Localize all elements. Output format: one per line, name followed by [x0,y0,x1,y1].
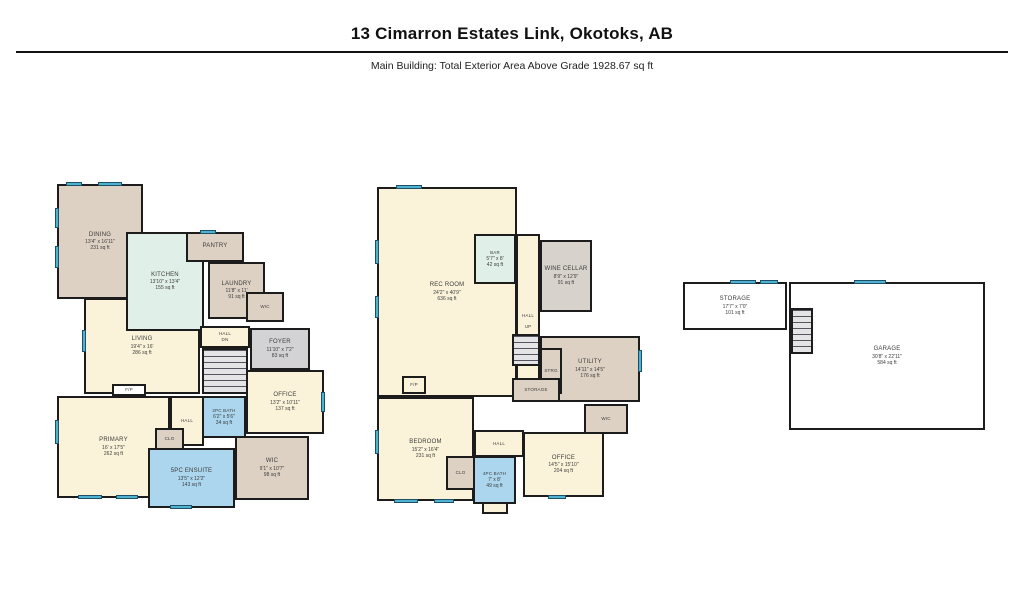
room-label: GARAGE 30'8" x 22'11" 584 sq ft [872,346,902,366]
window-marker [854,280,886,284]
window-marker [760,280,778,284]
room-area: 584 sq ft [872,360,902,366]
room-dims: 17'7" x 7'0" [720,304,751,310]
room-name: STORAGE [720,296,751,304]
floorplan-page: 13 Cimarron Estates Link, Okotoks, AB Ma… [0,0,1024,615]
room-label: STORAGE 17'7" x 7'0" 101 sq ft [720,296,751,316]
room-area: 101 sq ft [720,310,751,316]
room-dims: 30'8" x 22'11" [872,354,902,360]
room-storage-garage: STORAGE 17'7" x 7'0" 101 sq ft [683,282,787,330]
room-garage: GARAGE 30'8" x 22'11" 584 sq ft [789,282,985,430]
staircase-garage [791,308,813,354]
garage-floor-plan: GARAGE 30'8" x 22'11" 584 sq ft STORAGE … [0,0,1024,615]
room-name: GARAGE [872,346,902,354]
window-marker [730,280,756,284]
